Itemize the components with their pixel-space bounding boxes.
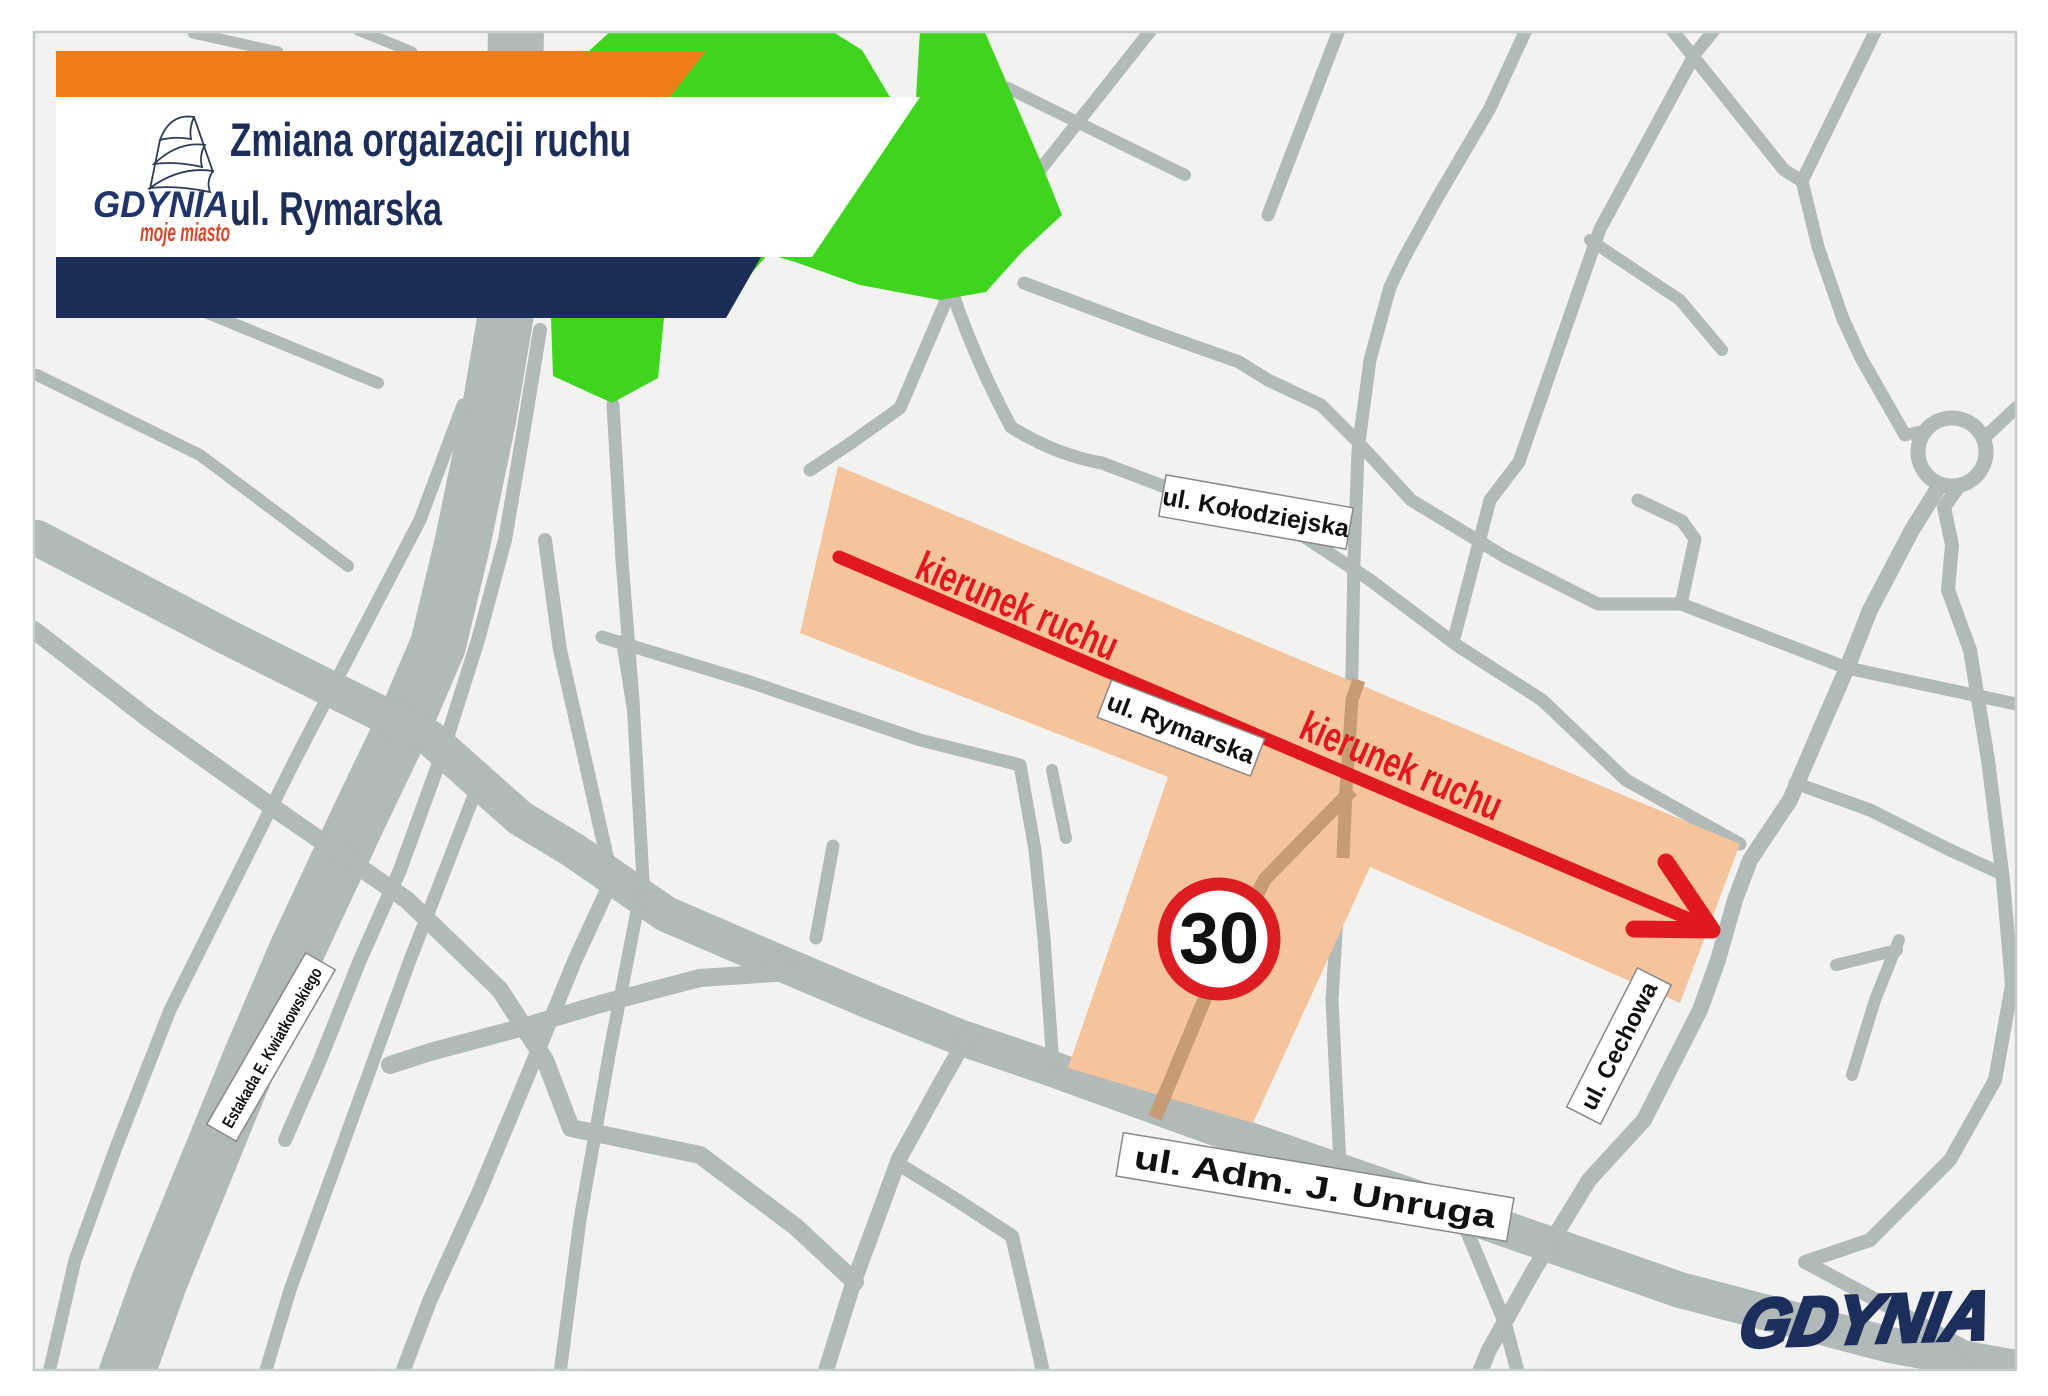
svg-text:Zmiana orgaizacji ruchu: Zmiana orgaizacji ruchu: [230, 113, 631, 166]
svg-text:30: 30: [1179, 899, 1259, 979]
svg-text:GDYNIA: GDYNIA: [1734, 1277, 1997, 1362]
svg-text:moje miasto: moje miasto: [140, 217, 230, 247]
svg-text:ul. Rymarska: ul. Rymarska: [230, 182, 443, 235]
